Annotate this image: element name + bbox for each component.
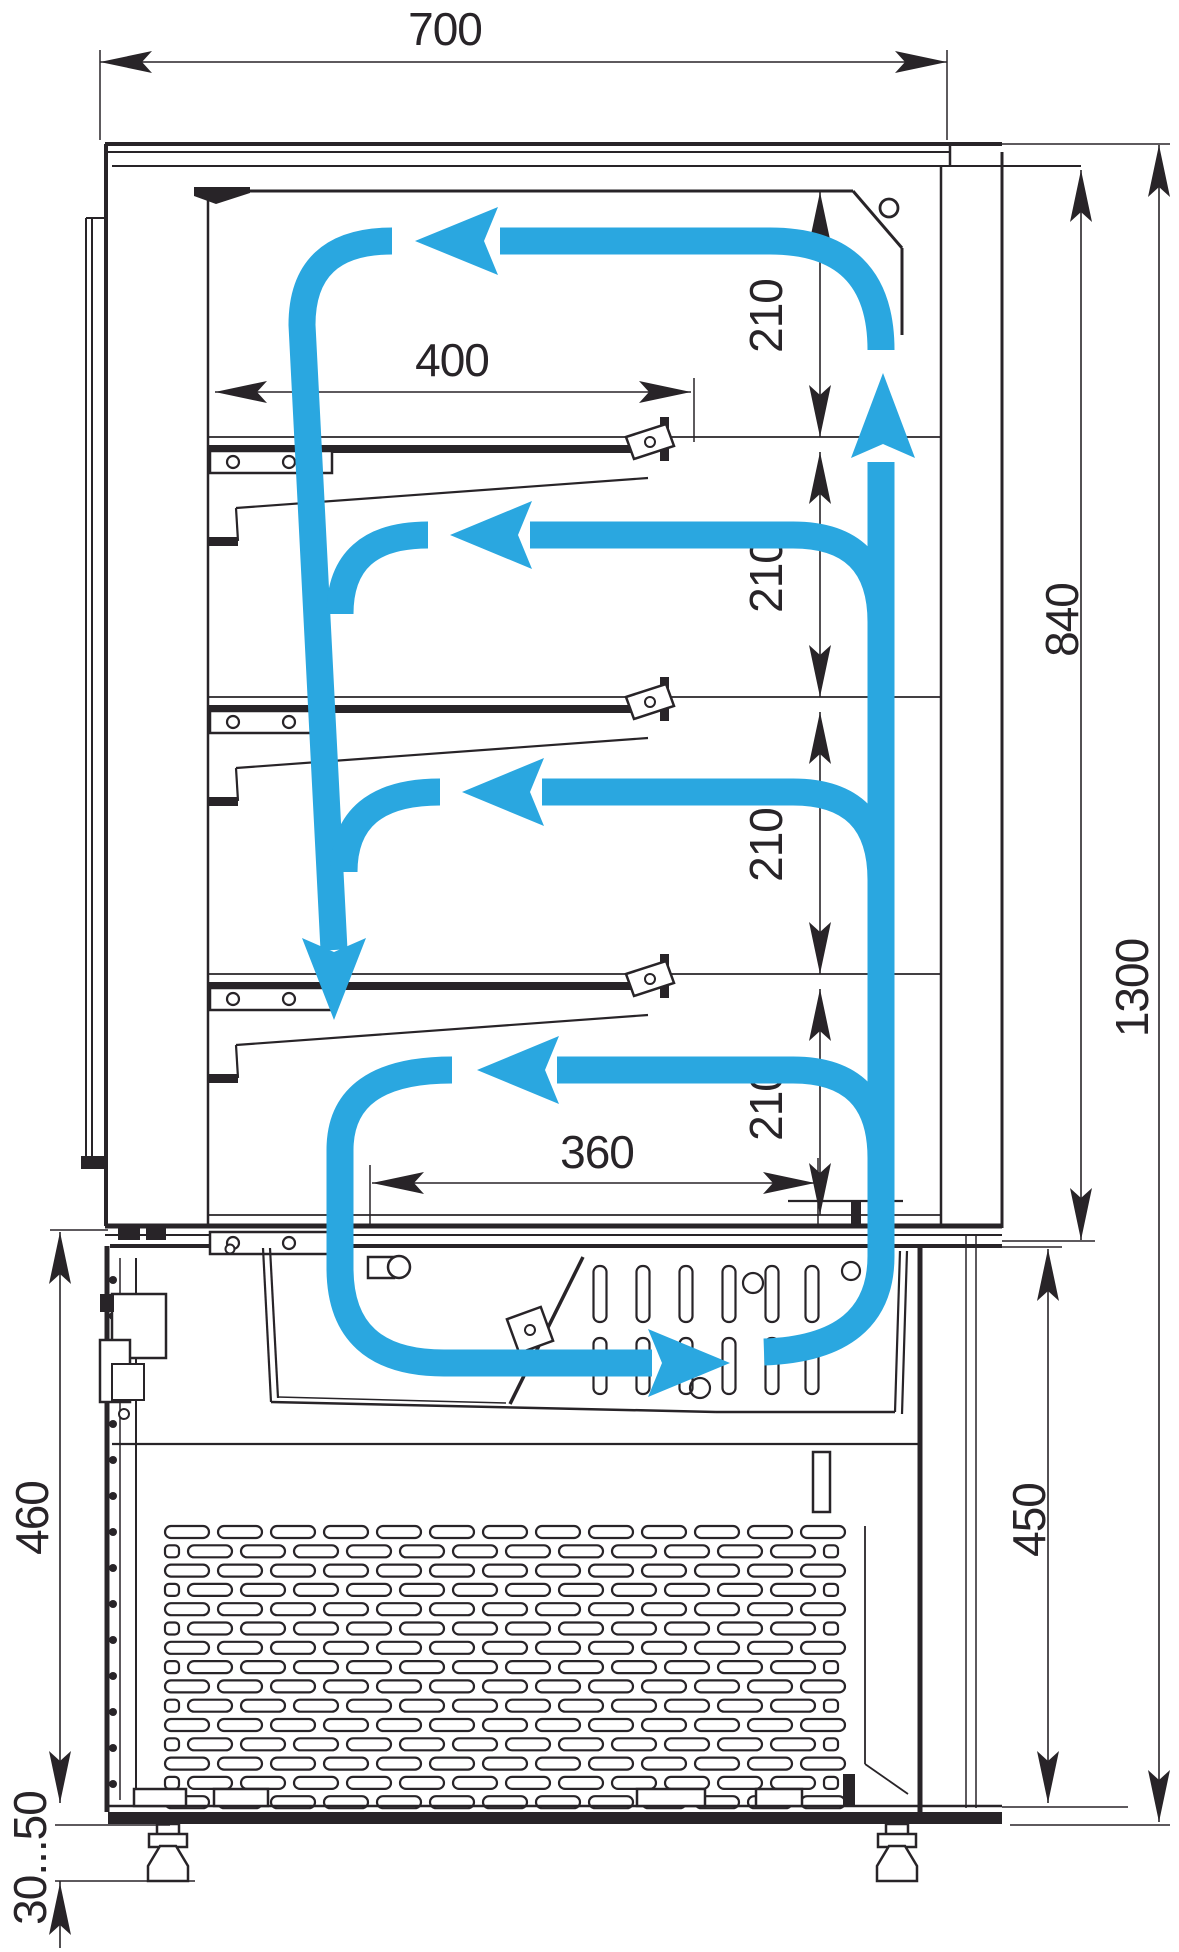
grille-slot — [771, 1545, 815, 1557]
counter-deck — [105, 1201, 1002, 1254]
grille-slot — [483, 1719, 527, 1731]
grille-slot — [536, 1603, 580, 1615]
perf-slot — [723, 1338, 736, 1394]
grille-slot — [536, 1565, 580, 1577]
grille-slot — [483, 1603, 527, 1615]
grille-slot — [165, 1603, 209, 1615]
perf-hole — [743, 1273, 763, 1293]
grille-slot — [559, 1545, 603, 1557]
dim-label-pitch-1: 210 — [740, 279, 792, 353]
perf-slot — [766, 1266, 779, 1322]
drawing-canvas: 700 400 360 210 210 210 210 840 1300 450… — [0, 0, 1179, 1952]
grille-slot — [483, 1526, 527, 1538]
perf-slot — [723, 1266, 736, 1322]
grille-slot — [589, 1642, 633, 1654]
grille-slot — [165, 1719, 209, 1731]
grille-slot — [536, 1719, 580, 1731]
grille-slot — [559, 1777, 603, 1789]
perf-slot — [680, 1266, 693, 1322]
grille-slot — [430, 1526, 474, 1538]
dim-display-height — [1002, 170, 1095, 1241]
grille-slot — [218, 1719, 262, 1731]
grille-slot — [324, 1603, 368, 1615]
grille-slot — [241, 1623, 285, 1635]
grille-slot — [218, 1680, 262, 1692]
grille-slot — [188, 1738, 232, 1750]
grille-slot — [271, 1642, 315, 1654]
adjustable-foot-right — [877, 1824, 917, 1881]
grille-slot — [400, 1545, 444, 1557]
grille-slot — [695, 1680, 739, 1692]
grille-slot — [771, 1777, 815, 1789]
grille-slot — [771, 1584, 815, 1596]
dim-label-shelf-depth: 400 — [415, 334, 489, 386]
dimension-labels: 700 400 360 210 210 210 210 840 1300 450… — [4, 3, 1158, 1925]
grille-slot — [642, 1719, 686, 1731]
grille-slot — [589, 1565, 633, 1577]
grille-slot — [430, 1642, 474, 1654]
grille-slot — [241, 1738, 285, 1750]
airflow-arrow-top-left — [415, 207, 498, 275]
grille-slot — [483, 1565, 527, 1577]
grille-slot — [347, 1623, 391, 1635]
grille-slot — [377, 1526, 421, 1538]
grille-slot — [453, 1738, 497, 1750]
grille-slot — [165, 1680, 209, 1692]
grille-slot — [718, 1584, 762, 1596]
grille-slot — [377, 1603, 421, 1615]
hinge-bump — [109, 1492, 117, 1500]
grille-slot — [188, 1623, 232, 1635]
dim-shelf-depth — [215, 378, 694, 442]
grille-slot — [453, 1777, 497, 1789]
grille-slot — [377, 1565, 421, 1577]
grille-slot — [241, 1777, 285, 1789]
grille-slot — [642, 1565, 686, 1577]
grille-slot — [536, 1526, 580, 1538]
grille-slot — [241, 1545, 285, 1557]
grille-slot — [824, 1738, 838, 1750]
grille-slot — [294, 1661, 338, 1673]
grille-slot — [271, 1603, 315, 1615]
airflow-top-run — [500, 241, 881, 350]
hinge-bump — [109, 1564, 117, 1572]
grille-slot — [771, 1661, 815, 1673]
grille-slot — [218, 1642, 262, 1654]
perf-slot — [806, 1266, 819, 1322]
grille-slot — [430, 1603, 474, 1615]
hinge-bump — [109, 1708, 117, 1716]
grille-slot — [589, 1719, 633, 1731]
condenser-grille — [165, 1526, 845, 1808]
airflow-shelf1-merge — [340, 535, 428, 614]
base-frame — [105, 1774, 1002, 1824]
grille-slot — [241, 1584, 285, 1596]
grille-slot — [695, 1603, 739, 1615]
grille-slot — [642, 1680, 686, 1692]
perf-slot — [637, 1266, 650, 1322]
grille-slot — [665, 1738, 709, 1750]
dim-label-base-left-height: 460 — [6, 1481, 58, 1555]
airflow — [302, 207, 915, 1397]
dim-overall-width — [100, 50, 947, 140]
grille-slot — [506, 1661, 550, 1673]
ceiling-light — [194, 187, 250, 204]
dim-label-leg-adjustment: 30...50 — [4, 1791, 56, 1925]
grille-slot — [294, 1584, 338, 1596]
grille-slot — [506, 1777, 550, 1789]
grille-slot — [559, 1584, 603, 1596]
grille-slot — [748, 1565, 792, 1577]
grille-slot — [294, 1777, 338, 1789]
grille-slot — [506, 1545, 550, 1557]
grille-slot — [559, 1623, 603, 1635]
grille-slot — [771, 1700, 815, 1712]
grille-slot — [536, 1758, 580, 1770]
grille-slot — [612, 1545, 656, 1557]
grille-slot — [748, 1526, 792, 1538]
grille-slot — [430, 1565, 474, 1577]
grille-slot — [612, 1661, 656, 1673]
grille-slot — [294, 1623, 338, 1635]
grille-slot — [453, 1545, 497, 1557]
grille-slot — [771, 1738, 815, 1750]
grille-slot — [324, 1526, 368, 1538]
hinge-bump — [109, 1672, 117, 1680]
grille-slot — [377, 1680, 421, 1692]
airflow-arrow-up — [851, 373, 915, 458]
grille-slot — [589, 1758, 633, 1770]
grille-slot — [559, 1661, 603, 1673]
grille-slot — [165, 1545, 179, 1557]
grille-slot — [665, 1623, 709, 1635]
hinge-bump — [109, 1600, 117, 1608]
grille-slot — [612, 1777, 656, 1789]
grille-slot — [824, 1777, 838, 1789]
grille-slot — [483, 1758, 527, 1770]
grille-slot — [506, 1584, 550, 1596]
grille-slot — [801, 1758, 845, 1770]
dim-label-pitch-3: 210 — [740, 808, 792, 882]
grille-slot — [400, 1738, 444, 1750]
grille-slot — [271, 1526, 315, 1538]
grille-slot — [271, 1719, 315, 1731]
airflow-shelf1-branch — [530, 535, 881, 622]
grille-slot — [165, 1700, 179, 1712]
grille-slot — [824, 1545, 838, 1557]
grille-slot — [165, 1777, 179, 1789]
grille-slot — [400, 1777, 444, 1789]
grille-slot — [612, 1584, 656, 1596]
grille-slot — [642, 1526, 686, 1538]
grille-slot — [377, 1642, 421, 1654]
grille-slot — [748, 1758, 792, 1770]
grille-slot — [165, 1565, 209, 1577]
grille-slot — [188, 1584, 232, 1596]
grille-slot — [324, 1565, 368, 1577]
grille-slot — [294, 1738, 338, 1750]
grille-slot — [165, 1584, 179, 1596]
grille-slot — [695, 1526, 739, 1538]
grille-slot — [748, 1642, 792, 1654]
grille-slot — [294, 1700, 338, 1712]
grille-slot — [824, 1661, 838, 1673]
grille-slot — [718, 1661, 762, 1673]
airflow-arrow-shelf3 — [477, 1036, 559, 1104]
grille-slot — [748, 1719, 792, 1731]
grille-slot — [824, 1584, 838, 1596]
grille-slot — [165, 1758, 209, 1770]
grille-slot — [218, 1565, 262, 1577]
grille-slot — [665, 1661, 709, 1673]
grille-slot — [347, 1545, 391, 1557]
grille-slot — [347, 1700, 391, 1712]
grille-slot — [294, 1545, 338, 1557]
glass-door — [81, 218, 108, 1169]
drain-tube — [813, 1452, 830, 1512]
grille-slot — [506, 1738, 550, 1750]
airflow-shelf2-merge — [344, 792, 440, 872]
sensor-dot — [880, 199, 898, 217]
grille-slot — [665, 1777, 709, 1789]
adjustable-foot-left — [148, 1824, 188, 1881]
grille-slot — [324, 1680, 368, 1692]
grille-slot — [324, 1642, 368, 1654]
dim-label-overall-height: 1300 — [1106, 939, 1158, 1037]
grille-slot — [453, 1661, 497, 1673]
grille-slot — [506, 1700, 550, 1712]
grille-slot — [430, 1758, 474, 1770]
dim-label-deck-depth: 360 — [560, 1126, 634, 1178]
grille-slot — [718, 1738, 762, 1750]
grille-slot — [271, 1680, 315, 1692]
perf-slot — [594, 1266, 607, 1322]
grille-slot — [218, 1526, 262, 1538]
grille-slot — [506, 1623, 550, 1635]
grille-slot — [241, 1700, 285, 1712]
grille-slot — [188, 1545, 232, 1557]
grille-slot — [642, 1642, 686, 1654]
grille-slot — [377, 1719, 421, 1731]
grille-slot — [218, 1758, 262, 1770]
grille-slot — [695, 1719, 739, 1731]
grille-slot — [612, 1700, 656, 1712]
grille-slot — [801, 1526, 845, 1538]
grille-slot — [718, 1545, 762, 1557]
grille-slot — [824, 1623, 838, 1635]
airflow-arrow-shelf1 — [450, 501, 532, 569]
grille-slot — [347, 1661, 391, 1673]
grille-slot — [824, 1700, 838, 1712]
defrost-sensor — [507, 1307, 553, 1353]
airflow-shelf2-branch — [542, 792, 881, 880]
grille-slot — [347, 1738, 391, 1750]
grille-slot — [559, 1700, 603, 1712]
grille-slot — [695, 1642, 739, 1654]
grille-slot — [165, 1526, 209, 1538]
grille-slot — [165, 1738, 179, 1750]
grille-slot — [748, 1680, 792, 1692]
grille-slot — [377, 1758, 421, 1770]
grille-slot — [559, 1738, 603, 1750]
perf-hole — [842, 1262, 860, 1280]
dim-label-pitch-2: 210 — [740, 539, 792, 613]
hinge-bump — [109, 1420, 117, 1428]
grille-slot — [589, 1526, 633, 1538]
grille-slot — [241, 1661, 285, 1673]
grille-slot — [801, 1565, 845, 1577]
grille-slot — [165, 1623, 179, 1635]
compressor-relay-box — [100, 1294, 166, 1419]
grille-slot — [536, 1642, 580, 1654]
grille-slot — [453, 1700, 497, 1712]
grille-slot — [718, 1700, 762, 1712]
grille-slot — [612, 1738, 656, 1750]
grille-slot — [536, 1680, 580, 1692]
grille-slot — [347, 1584, 391, 1596]
grille-slot — [483, 1680, 527, 1692]
grille-slot — [188, 1700, 232, 1712]
grille-slot — [483, 1642, 527, 1654]
grille-slot — [642, 1758, 686, 1770]
grille-slot — [271, 1758, 315, 1770]
grille-slot — [430, 1719, 474, 1731]
hinge-bump — [109, 1276, 117, 1284]
dim-label-overall-width: 700 — [408, 3, 482, 55]
grille-slot — [271, 1565, 315, 1577]
grille-slot — [801, 1642, 845, 1654]
hinge-bump — [109, 1456, 117, 1464]
grille-slot — [695, 1565, 739, 1577]
grille-slot — [188, 1777, 232, 1789]
grille-slot — [400, 1584, 444, 1596]
grille-slot — [430, 1680, 474, 1692]
grille-slot — [801, 1719, 845, 1731]
grille-slot — [801, 1603, 845, 1615]
grille-slot — [612, 1623, 656, 1635]
grille-slot — [165, 1661, 179, 1673]
hinge-bump — [109, 1528, 117, 1536]
grille-slot — [771, 1623, 815, 1635]
grille-slot — [665, 1700, 709, 1712]
grille-slot — [453, 1584, 497, 1596]
grille-slot — [347, 1777, 391, 1789]
grille-slot — [589, 1603, 633, 1615]
grille-slot — [589, 1680, 633, 1692]
hinge-bump — [109, 1780, 117, 1788]
grille-slot — [642, 1603, 686, 1615]
grille-slot — [718, 1777, 762, 1789]
grille-slot — [665, 1584, 709, 1596]
grille-slot — [188, 1661, 232, 1673]
float-valve — [368, 1256, 410, 1278]
grille-slot — [400, 1700, 444, 1712]
grille-slot — [695, 1758, 739, 1770]
grille-edge-chamfer — [865, 1764, 908, 1794]
dim-label-display-height: 840 — [1036, 583, 1088, 657]
technical-drawing: 700 400 360 210 210 210 210 840 1300 450… — [0, 0, 1179, 1952]
grille-slot — [665, 1545, 709, 1557]
grille-slot — [324, 1719, 368, 1731]
hinge-bump — [109, 1744, 117, 1752]
airflow-arrow-shelf2 — [462, 758, 544, 826]
grille-slot — [218, 1603, 262, 1615]
dim-label-base-right-height: 450 — [1003, 1483, 1055, 1557]
grille-slot — [400, 1661, 444, 1673]
grille-slot — [801, 1680, 845, 1692]
grille-slot — [165, 1642, 209, 1654]
grille-slot — [718, 1623, 762, 1635]
grille-slot — [748, 1603, 792, 1615]
grille-slot — [400, 1623, 444, 1635]
grille-slot — [324, 1758, 368, 1770]
grille-slot — [453, 1623, 497, 1635]
hinge-bump — [109, 1636, 117, 1644]
